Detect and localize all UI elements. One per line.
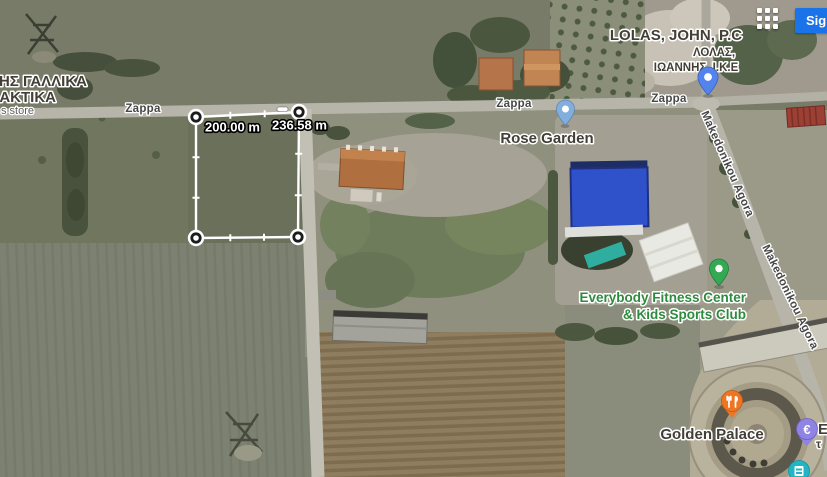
red-roof-structure	[786, 106, 825, 128]
satellite-map[interactable]: ΔΗΣ ΓΑΛΛΙΚΑ ΛΑΚΤΙΚΑ s store Zappa Zappa …	[0, 0, 827, 477]
film-icon	[795, 466, 804, 476]
fitness-label-line1[interactable]: Everybody Fitness Center	[579, 290, 746, 305]
right-edge-partial-label-top: E	[818, 421, 827, 438]
blue-sports-hall	[570, 160, 648, 227]
measure-handle-bottom-left[interactable]	[188, 230, 204, 246]
pin-dot-icon	[704, 73, 712, 81]
pin-dot-icon	[562, 105, 569, 112]
road-label-zappa-west: Zappa	[125, 103, 161, 115]
road-label-zappa-east: Zappa	[651, 93, 687, 105]
pin-dot-icon	[715, 265, 722, 272]
measure-width-label: 200.00 m	[205, 120, 260, 135]
sign-in-button[interactable]: Sign in	[795, 8, 827, 33]
movie-theater-pin[interactable]	[789, 461, 810, 477]
measure-height-label: 236.58 m	[272, 118, 327, 133]
rose-garden-label[interactable]: Rose Garden	[500, 130, 593, 147]
measure-handle-top-left[interactable]	[188, 109, 204, 125]
store-label-line3: s store	[1, 105, 34, 117]
right-edge-partial-label-bottom: τ	[816, 439, 821, 451]
measure-segment-handle[interactable]	[277, 107, 288, 112]
google-apps-icon[interactable]	[757, 8, 780, 31]
measure-handle-bottom-right[interactable]	[290, 229, 306, 245]
lolas-label-line2[interactable]: ΛΟΛΑΣ,	[693, 47, 735, 59]
warehouse-building	[333, 310, 428, 343]
shed	[320, 290, 336, 300]
fitness-label-line2[interactable]: & Kids Sports Club	[623, 307, 746, 322]
road-label-zappa-center: Zappa	[496, 98, 532, 110]
golden-palace-label[interactable]: Golden Palace	[660, 426, 763, 443]
map-viewport[interactable]: ΔΗΣ ΓΑΛΛΙΚΑ ΛΑΚΤΙΚΑ s store Zappa Zappa …	[0, 0, 827, 477]
sign-in-label: Sign in	[806, 13, 827, 28]
store-label-line2[interactable]: ΛΑΚΤΙΚΑ	[0, 89, 56, 106]
lolas-label-line1[interactable]: LOLAS, JOHN, P.C	[610, 27, 742, 44]
euro-icon: €	[803, 422, 810, 437]
lolas-label-line3[interactable]: ΙΩΑΝΝΗΣ, Ι.Κ.Ε	[654, 62, 739, 74]
store-label-line1[interactable]: ΔΗΣ ΓΑΛΛΙΚΑ	[0, 73, 87, 90]
